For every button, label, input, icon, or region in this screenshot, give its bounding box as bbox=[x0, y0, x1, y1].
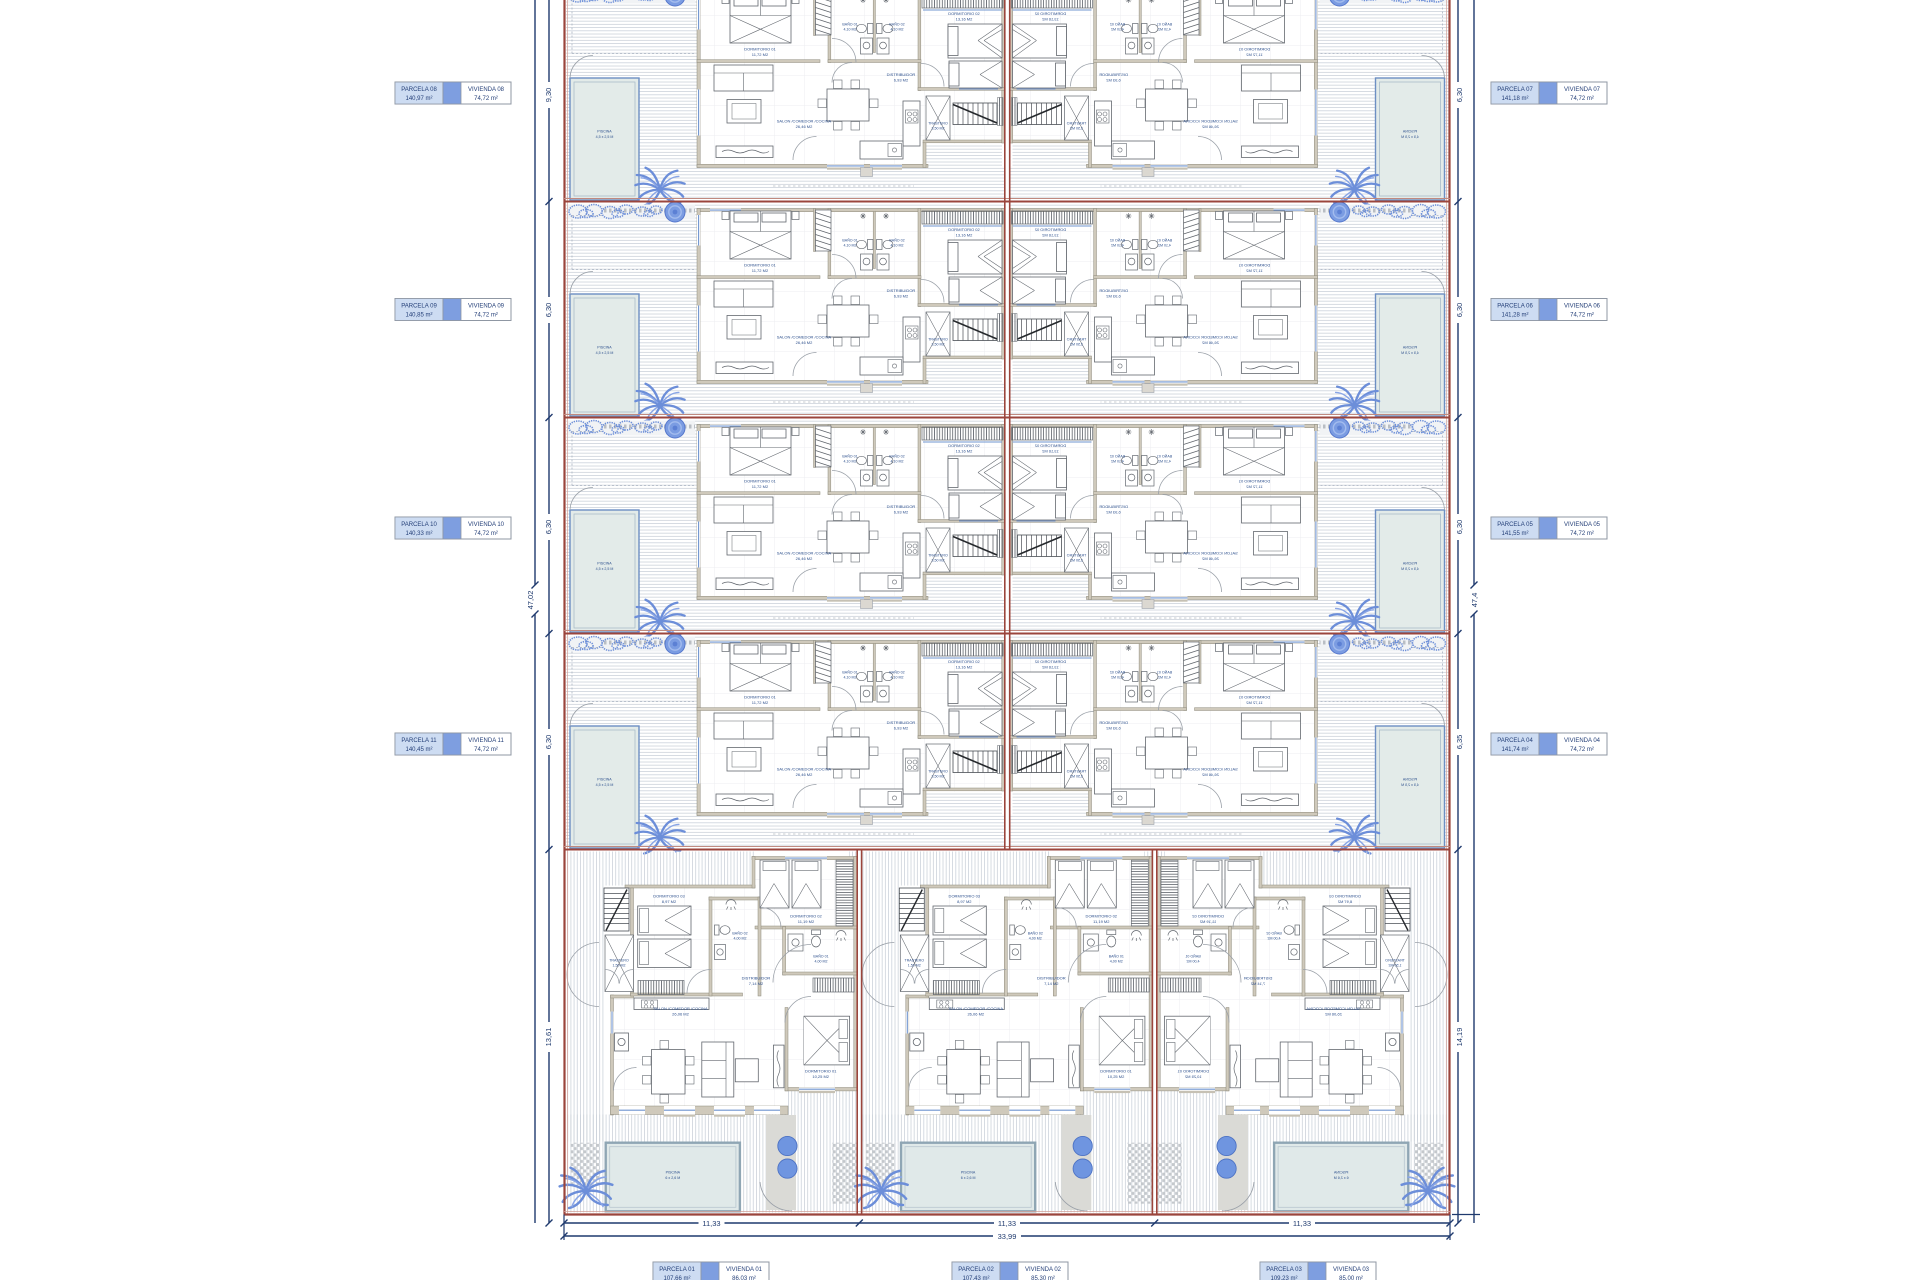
svg-text:85,30 m²: 85,30 m² bbox=[1031, 1276, 1055, 1280]
svg-text:PARCELA 09: PARCELA 09 bbox=[401, 304, 437, 310]
svg-text:11,33: 11,33 bbox=[702, 1219, 720, 1228]
svg-text:74,72 m²: 74,72 m² bbox=[474, 747, 498, 753]
svg-text:140,45 m²: 140,45 m² bbox=[405, 747, 432, 753]
svg-text:VIVIENDA 05: VIVIENDA 05 bbox=[1564, 522, 1601, 528]
svg-text:74,72 m²: 74,72 m² bbox=[1570, 747, 1594, 753]
svg-text:6,30: 6,30 bbox=[544, 735, 553, 750]
svg-text:109,23 m²: 109,23 m² bbox=[1270, 1276, 1297, 1280]
svg-text:9,30: 9,30 bbox=[544, 88, 553, 103]
svg-text:6,30: 6,30 bbox=[544, 303, 553, 318]
svg-text:11,33: 11,33 bbox=[1293, 1219, 1311, 1228]
svg-text:VIVIENDA 06: VIVIENDA 06 bbox=[1564, 304, 1601, 310]
svg-text:141,55 m²: 141,55 m² bbox=[1501, 531, 1528, 537]
svg-text:PARCELA 03: PARCELA 03 bbox=[1266, 1267, 1302, 1273]
svg-text:VIVIENDA 04: VIVIENDA 04 bbox=[1564, 738, 1601, 744]
svg-text:74,72 m²: 74,72 m² bbox=[1570, 313, 1594, 319]
svg-text:VIVIENDA 03: VIVIENDA 03 bbox=[1333, 1267, 1370, 1273]
svg-text:47,02: 47,02 bbox=[526, 591, 535, 610]
svg-text:PARCELA 04: PARCELA 04 bbox=[1497, 738, 1533, 744]
svg-text:74,72 m²: 74,72 m² bbox=[474, 531, 498, 537]
svg-text:6,30: 6,30 bbox=[1455, 303, 1464, 318]
svg-text:74,72 m²: 74,72 m² bbox=[474, 313, 498, 319]
svg-text:11,33: 11,33 bbox=[998, 1219, 1016, 1228]
svg-text:14,19: 14,19 bbox=[1455, 1028, 1464, 1047]
svg-text:6,35: 6,35 bbox=[1455, 735, 1464, 750]
svg-text:141,74 m²: 141,74 m² bbox=[1501, 747, 1528, 753]
svg-text:141,18 m²: 141,18 m² bbox=[1501, 96, 1528, 102]
svg-text:PARCELA 07: PARCELA 07 bbox=[1497, 87, 1533, 93]
svg-text:74,72 m²: 74,72 m² bbox=[474, 96, 498, 102]
svg-text:86,03 m²: 86,03 m² bbox=[732, 1276, 756, 1280]
svg-text:PARCELA 08: PARCELA 08 bbox=[401, 87, 437, 93]
svg-text:141,28 m²: 141,28 m² bbox=[1501, 313, 1528, 319]
svg-text:VIVIENDA 01: VIVIENDA 01 bbox=[726, 1267, 763, 1273]
svg-text:PARCELA 10: PARCELA 10 bbox=[401, 522, 437, 528]
svg-text:6,30: 6,30 bbox=[1455, 520, 1464, 535]
svg-text:33,99: 33,99 bbox=[998, 1232, 1017, 1241]
svg-text:74,72 m²: 74,72 m² bbox=[1570, 531, 1594, 537]
svg-text:47,4: 47,4 bbox=[1470, 593, 1479, 608]
svg-text:85,00 m²: 85,00 m² bbox=[1339, 1276, 1363, 1280]
svg-text:107,43 m²: 107,43 m² bbox=[962, 1276, 989, 1280]
svg-text:VIVIENDA 02: VIVIENDA 02 bbox=[1025, 1267, 1062, 1273]
svg-text:6,30: 6,30 bbox=[544, 520, 553, 535]
svg-text:74,72 m²: 74,72 m² bbox=[1570, 96, 1594, 102]
svg-text:107,66 m²: 107,66 m² bbox=[663, 1276, 690, 1280]
svg-text:13,61: 13,61 bbox=[544, 1028, 553, 1047]
svg-text:140,85 m²: 140,85 m² bbox=[405, 313, 432, 319]
svg-text:VIVIENDA 08: VIVIENDA 08 bbox=[468, 87, 505, 93]
svg-text:VIVIENDA 07: VIVIENDA 07 bbox=[1564, 87, 1601, 93]
svg-text:140,33 m²: 140,33 m² bbox=[405, 531, 432, 537]
svg-text:PARCELA 02: PARCELA 02 bbox=[958, 1267, 994, 1273]
svg-text:VIVIENDA 10: VIVIENDA 10 bbox=[468, 522, 505, 528]
svg-text:PARCELA 11: PARCELA 11 bbox=[401, 738, 437, 744]
svg-text:VIVIENDA 11: VIVIENDA 11 bbox=[468, 738, 504, 744]
svg-text:PARCELA 01: PARCELA 01 bbox=[659, 1267, 695, 1273]
svg-text:140,97 m²: 140,97 m² bbox=[405, 96, 432, 102]
svg-text:PARCELA 06: PARCELA 06 bbox=[1497, 304, 1533, 310]
svg-text:6,30: 6,30 bbox=[1455, 88, 1464, 103]
svg-text:PARCELA 05: PARCELA 05 bbox=[1497, 522, 1533, 528]
svg-text:VIVIENDA 09: VIVIENDA 09 bbox=[468, 304, 505, 310]
